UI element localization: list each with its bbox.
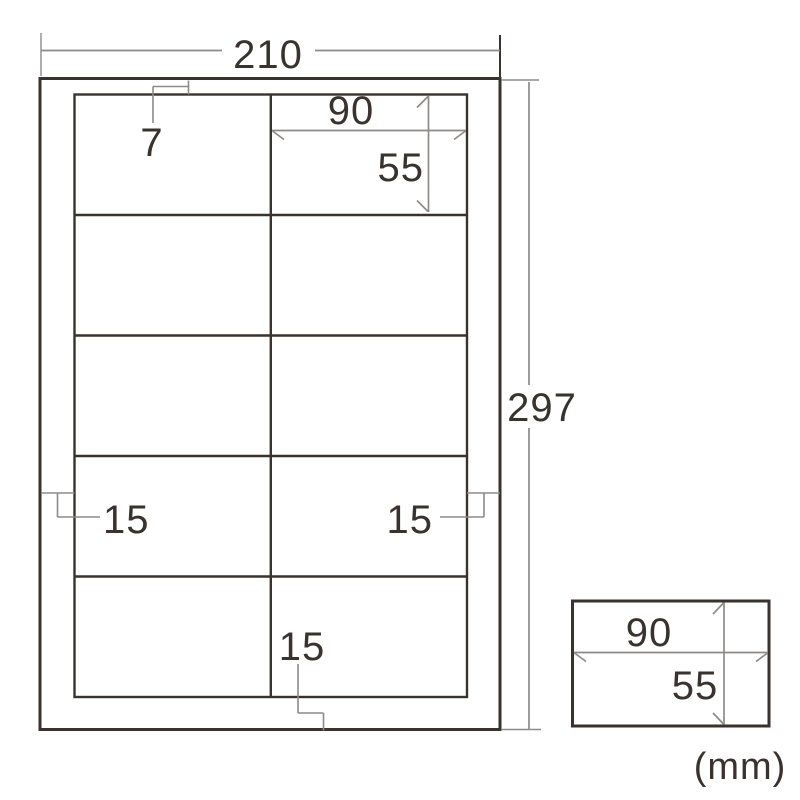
label-sheet-dimension-diagram: 210 297 7 90 55 15 15 [0, 0, 800, 800]
diagram-canvas: 210 297 7 90 55 15 15 [0, 0, 800, 800]
cell-height-dim-label: 55 [378, 146, 425, 190]
bottom-margin-dim-label: 15 [279, 625, 326, 669]
cell-width-dim-label: 90 [328, 89, 375, 133]
single-label-height-dim-label: 55 [672, 664, 719, 708]
single-label-width-dim-label: 90 [626, 611, 673, 655]
top-margin-dim-label: 7 [140, 121, 163, 165]
sheet-width-dim-label: 210 [233, 33, 303, 77]
left-margin-dim-label: 15 [103, 498, 150, 542]
sheet-height-dim-label: 297 [507, 386, 577, 430]
unit-label: (mm) [694, 746, 787, 788]
right-margin-dim-label: 15 [387, 498, 434, 542]
